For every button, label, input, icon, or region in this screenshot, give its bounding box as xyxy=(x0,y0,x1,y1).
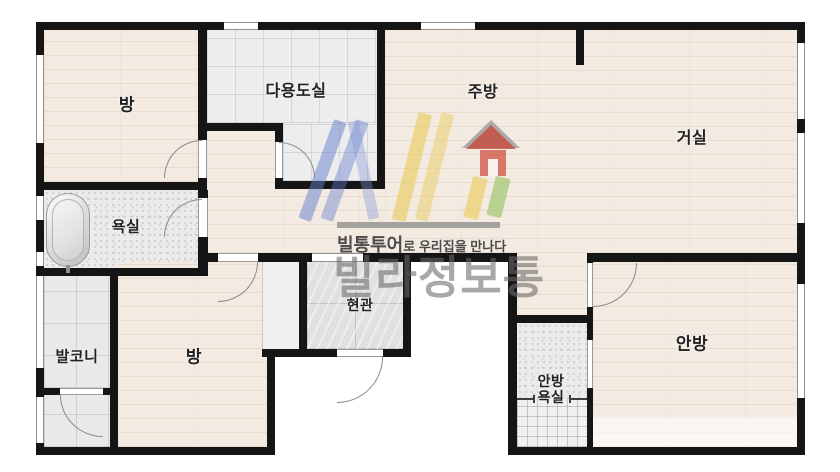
window-right-living-2 xyxy=(797,133,805,223)
wall-entrance-right xyxy=(403,253,411,357)
wall-roombottom-right xyxy=(267,349,275,455)
wall-masterbath-top xyxy=(508,315,593,323)
door-master-bathroom xyxy=(587,340,593,388)
door-arc-entrance-main xyxy=(337,357,383,403)
label-living-room: 거실 xyxy=(677,124,707,148)
wall-bathroom-top xyxy=(36,182,207,190)
room-bottom-closet-strip xyxy=(262,262,300,349)
window-left-bath-1 xyxy=(36,196,44,220)
window-right-master xyxy=(797,284,805,398)
balcony-floor-upper xyxy=(44,276,110,388)
window-left-balcony-1 xyxy=(36,276,44,368)
kitchen-living-floor xyxy=(385,30,797,253)
wall-bottom-left xyxy=(36,447,275,455)
wall-bottom-right xyxy=(508,447,805,455)
label-balcony: 발코니 xyxy=(56,346,99,367)
window-right-living-1 xyxy=(797,43,805,119)
window-left-bath-2 xyxy=(36,252,44,266)
label-entrance: 현관 xyxy=(347,295,374,315)
wall-utility-kitchen xyxy=(377,30,385,189)
bathtub-icon xyxy=(46,193,90,267)
bathtub-drain xyxy=(66,265,70,273)
window-left-balcony-2 xyxy=(36,397,44,443)
wall-kitchen-stub xyxy=(576,30,584,65)
label-bathroom: 욕실 xyxy=(112,216,141,237)
hallway-floor-lower xyxy=(283,189,385,253)
masterbath-partition-left-tick xyxy=(533,395,535,403)
wall-bathroom-bottom xyxy=(36,268,208,276)
label-room-top-left: 방 xyxy=(119,91,135,116)
label-master-bathroom-line1: 안방 xyxy=(538,373,565,389)
window-top-1 xyxy=(224,22,258,30)
door-room-bottom xyxy=(218,253,258,262)
label-master-bathroom-line2: 욕실 xyxy=(538,389,565,405)
label-kitchen: 주방 xyxy=(468,78,498,102)
label-master-bathroom: 안방 욕실 xyxy=(538,373,565,405)
floorplan: 방 다용도실 주방 거실 욕실 발코니 방 현관 안방 안방 욕실 빌통투어로 … xyxy=(0,0,840,472)
opening-entrance-top xyxy=(312,253,363,262)
master-bedroom-floor-pale-strip xyxy=(593,417,797,447)
master-bathroom-floor-lower xyxy=(517,399,587,447)
wall-utility-bottom xyxy=(275,181,385,189)
bathtub-inner xyxy=(52,199,84,261)
label-master-bedroom: 안방 xyxy=(676,330,708,355)
wall-balcony-right xyxy=(110,276,118,455)
masterbath-partition-right-tick xyxy=(569,395,571,403)
window-left-room xyxy=(36,55,44,143)
hallway-floor-vertical xyxy=(207,131,283,253)
label-room-bottom: 방 xyxy=(186,343,202,368)
floorplan-canvas: 방 다용도실 주방 거실 욕실 발코니 방 현관 안방 안방 욕실 빌통투어로 … xyxy=(0,0,840,472)
masterbath-partition-right xyxy=(570,398,587,400)
wall-entrance-left xyxy=(299,253,307,357)
window-top-2 xyxy=(421,22,475,30)
master-hall-floor xyxy=(517,253,587,323)
wall-utility-inner-h xyxy=(207,123,283,131)
wall-master-top xyxy=(587,253,797,262)
label-utility-room: 다용도실 xyxy=(266,77,327,101)
door-balcony-divider xyxy=(60,388,103,395)
door-entrance-main xyxy=(337,349,383,357)
wall-masterbath-left xyxy=(508,253,517,455)
